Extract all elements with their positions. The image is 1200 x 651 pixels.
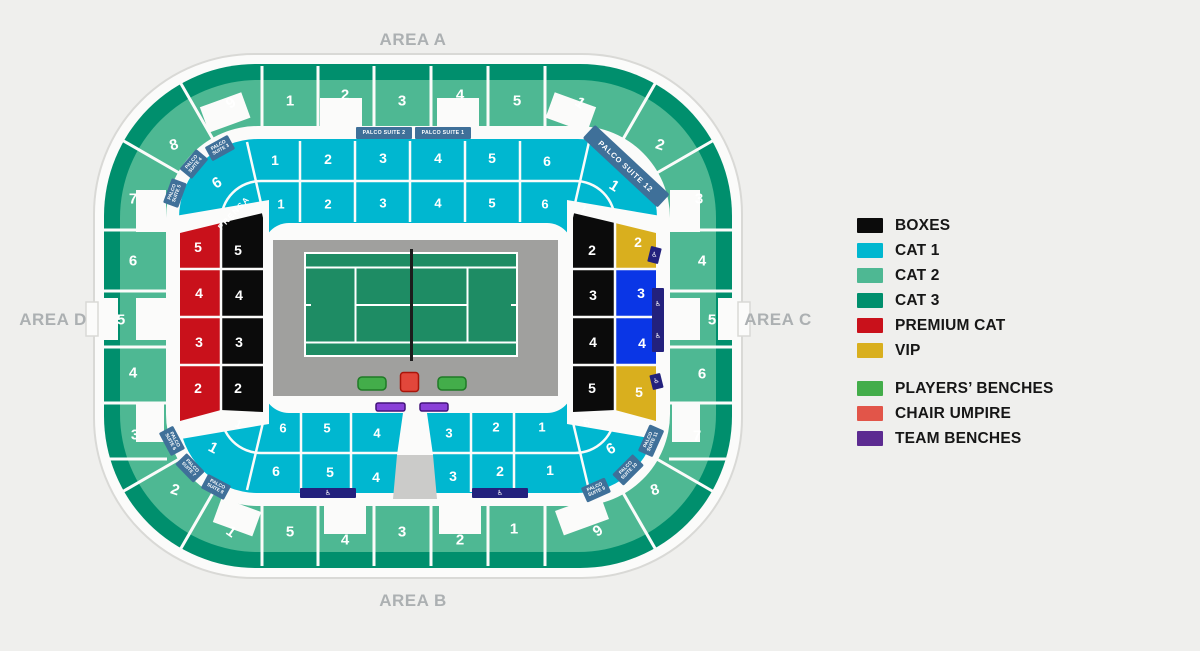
section-label[interactable]: 2 [588, 243, 596, 257]
accessible-icon: ♿ [652, 377, 660, 385]
section-label[interactable]: 7 [693, 429, 701, 444]
section-label[interactable]: 4 [129, 366, 137, 381]
suite-label[interactable]: PALCOSUITE 8 [201, 474, 232, 500]
legend-label: BOXES [895, 217, 950, 235]
section-label[interactable]: 4 [698, 254, 706, 269]
suite-label[interactable]: PALCOSUITE 6 [159, 426, 185, 457]
section-label[interactable]: 5 [488, 197, 495, 210]
legend-row: PREMIUM CAT [857, 318, 1054, 333]
section-label[interactable]: 4 [372, 470, 380, 484]
section-label[interactable]: 1 [538, 421, 545, 434]
section-label[interactable]: 3 [379, 197, 386, 210]
accessible-icon: ♿ [650, 251, 658, 259]
section-label[interactable]: 5 [234, 243, 242, 257]
section-label[interactable]: 5 [323, 422, 330, 435]
section-label[interactable]: 3 [449, 469, 457, 483]
section-label[interactable]: 6 [279, 422, 286, 435]
legend-label: TEAM BENCHES [895, 430, 1021, 448]
section-label[interactable]: 7 [129, 192, 137, 207]
area-label-b: AREA B [379, 591, 447, 611]
section-label[interactable]: 2 [324, 152, 332, 166]
section-label[interactable]: 1 [606, 177, 621, 194]
section-label[interactable]: 3 [379, 151, 387, 165]
section-label[interactable]: 1 [271, 153, 279, 167]
area-label-c: AREA C [744, 310, 812, 330]
section-label[interactable]: 3 [398, 525, 406, 540]
section-label[interactable]: 2 [492, 421, 499, 434]
area-label-d: AREA D [19, 310, 87, 330]
legend-group: BOXESCAT 1CAT 2CAT 3PREMIUM CATVIP [857, 218, 1054, 368]
suite-label[interactable]: PALCOSUITE 9 [581, 477, 611, 502]
legend-swatch [857, 293, 883, 308]
section-label[interactable]: 3 [695, 192, 703, 207]
legend-swatch [857, 268, 883, 283]
section-label[interactable]: 2 [169, 482, 182, 499]
section-label[interactable]: 4 [195, 286, 203, 300]
legend-row: PLAYERS’ BENCHES [857, 381, 1054, 396]
section-label[interactable]: 8 [649, 482, 662, 499]
area-label-a: AREA A [380, 30, 447, 50]
section-label[interactable]: 2 [341, 88, 349, 103]
section-label[interactable]: 6 [604, 440, 618, 457]
accessible-icon: ♿ [497, 490, 503, 497]
suite-label[interactable]: PALCO SUITE 1 [415, 127, 471, 139]
section-label[interactable]: 6 [541, 198, 548, 211]
legend-swatch [857, 318, 883, 333]
legend-row: CAT 2 [857, 268, 1054, 283]
section-label[interactable]: 3 [637, 286, 645, 300]
section-label[interactable]: 5 [326, 465, 334, 479]
section-label[interactable]: 4 [589, 335, 597, 349]
section-label[interactable]: 5 [588, 381, 596, 395]
section-label[interactable]: 2 [634, 235, 642, 249]
legend-label: PREMIUM CAT [895, 317, 1005, 335]
legend-row: VIP [857, 343, 1054, 358]
accessible-icon: ♿ [655, 301, 661, 308]
section-label[interactable]: 5 [708, 313, 716, 328]
suite-label[interactable]: PALCOSUITE 3 [205, 135, 236, 162]
legend-group: PLAYERS’ BENCHESCHAIR UMPIRETEAM BENCHES [857, 381, 1054, 456]
section-label[interactable]: 8 [168, 137, 181, 154]
legend-label: CHAIR UMPIRE [895, 405, 1011, 423]
section-label[interactable]: 1 [233, 419, 243, 432]
legend-swatch [857, 218, 883, 233]
section-label[interactable]: 2 [496, 464, 504, 478]
legend-row: CHAIR UMPIRE [857, 406, 1054, 421]
section-label[interactable]: 2 [234, 381, 242, 395]
section-label[interactable]: 1 [277, 198, 284, 211]
suite-label[interactable]: PALCOSUITE 10 [612, 454, 644, 486]
section-label[interactable]: 4 [235, 288, 243, 302]
section-label[interactable]: 3 [589, 288, 597, 302]
section-label[interactable]: 4 [638, 336, 646, 350]
section-label[interactable]: 3 [235, 335, 243, 349]
suite-label[interactable]: PALCOSUITE 4 [179, 149, 208, 179]
legend-swatch [857, 406, 883, 421]
legend-label: CAT 2 [895, 267, 940, 285]
section-label[interactable]: 4 [456, 88, 464, 103]
suite-label[interactable]: PALCOSUITE 5 [163, 178, 187, 208]
section-label[interactable]: 5 [488, 151, 496, 165]
legend-swatch [857, 381, 883, 396]
section-label[interactable]: 3 [445, 427, 452, 440]
section-label[interactable]: 6 [129, 254, 137, 269]
legend: BOXESCAT 1CAT 2CAT 3PREMIUM CATVIPPLAYER… [857, 218, 1054, 456]
accessible-icon: ♿ [325, 490, 331, 497]
section-label[interactable]: 4 [434, 197, 441, 210]
section-label[interactable]: 2 [456, 533, 464, 548]
suite-label[interactable]: PALCOSUITE 7 [175, 453, 205, 483]
accessible-seating-strip[interactable]: ♿ [649, 372, 663, 389]
section-label[interactable]: 5 [635, 385, 643, 399]
section-label[interactable]: 1 [223, 523, 238, 540]
section-label[interactable]: 6 [582, 418, 592, 431]
legend-label: CAT 1 [895, 242, 940, 260]
legend-label: CAT 3 [895, 292, 940, 310]
section-label[interactable]: 4 [341, 533, 349, 548]
section-label[interactable]: 6 [209, 174, 224, 191]
suite-label[interactable]: PALCO SUITE 2 [356, 127, 412, 139]
section-label[interactable]: 1 [572, 94, 587, 111]
press-section-label[interactable]: PRENSA [216, 194, 251, 231]
section-label[interactable]: 3 [195, 335, 203, 349]
section-label[interactable]: 3 [131, 428, 139, 443]
section-label[interactable]: 5 [117, 313, 125, 328]
suite-label[interactable]: PALCO SUITE 12 [583, 125, 670, 207]
section-label[interactable]: 1 [546, 463, 554, 477]
legend-swatch [857, 243, 883, 258]
section-label[interactable]: 1 [578, 204, 589, 217]
accessible-seating-strip[interactable]: ♿ [647, 246, 662, 264]
suite-label[interactable]: PALCOSUITE 11 [638, 425, 664, 458]
section-label[interactable]: 9 [590, 522, 605, 539]
legend-label: VIP [895, 342, 921, 360]
section-label[interactable]: 6 [272, 464, 280, 478]
section-label[interactable]: 2 [654, 137, 667, 154]
section-label[interactable]: 3 [398, 94, 406, 109]
section-label[interactable]: 6 [698, 367, 706, 382]
section-label[interactable]: 5 [286, 525, 294, 540]
legend-row: CAT 3 [857, 293, 1054, 308]
section-label[interactable]: 9 [223, 94, 238, 111]
accessible-icon: ♿ [655, 333, 661, 340]
seating-map-page: AREA A AREA B AREA C AREA D 123451234567… [0, 0, 1200, 651]
legend-label: PLAYERS’ BENCHES [895, 380, 1054, 398]
accessible-seating-strip[interactable]: ♿ [472, 488, 528, 498]
section-label[interactable]: 1 [510, 522, 518, 537]
legend-row: TEAM BENCHES [857, 431, 1054, 446]
legend-swatch [857, 431, 883, 446]
section-label[interactable]: 4 [373, 427, 380, 440]
section-label[interactable]: 5 [513, 94, 521, 109]
legend-swatch [857, 343, 883, 358]
legend-row: BOXES [857, 218, 1054, 233]
section-label[interactable]: 2 [324, 198, 331, 211]
section-label[interactable]: 1 [286, 94, 294, 109]
section-label[interactable]: 6 [543, 154, 551, 168]
accessible-seating-strip[interactable]: ♿ [300, 488, 356, 498]
section-label[interactable]: 4 [434, 151, 442, 165]
section-label[interactable]: 5 [194, 240, 202, 254]
accessible-seating-strip[interactable]: ♿♿ [652, 288, 664, 352]
section-label[interactable]: 2 [194, 381, 202, 395]
section-label[interactable]: 1 [206, 439, 220, 456]
legend-row: CAT 1 [857, 243, 1054, 258]
